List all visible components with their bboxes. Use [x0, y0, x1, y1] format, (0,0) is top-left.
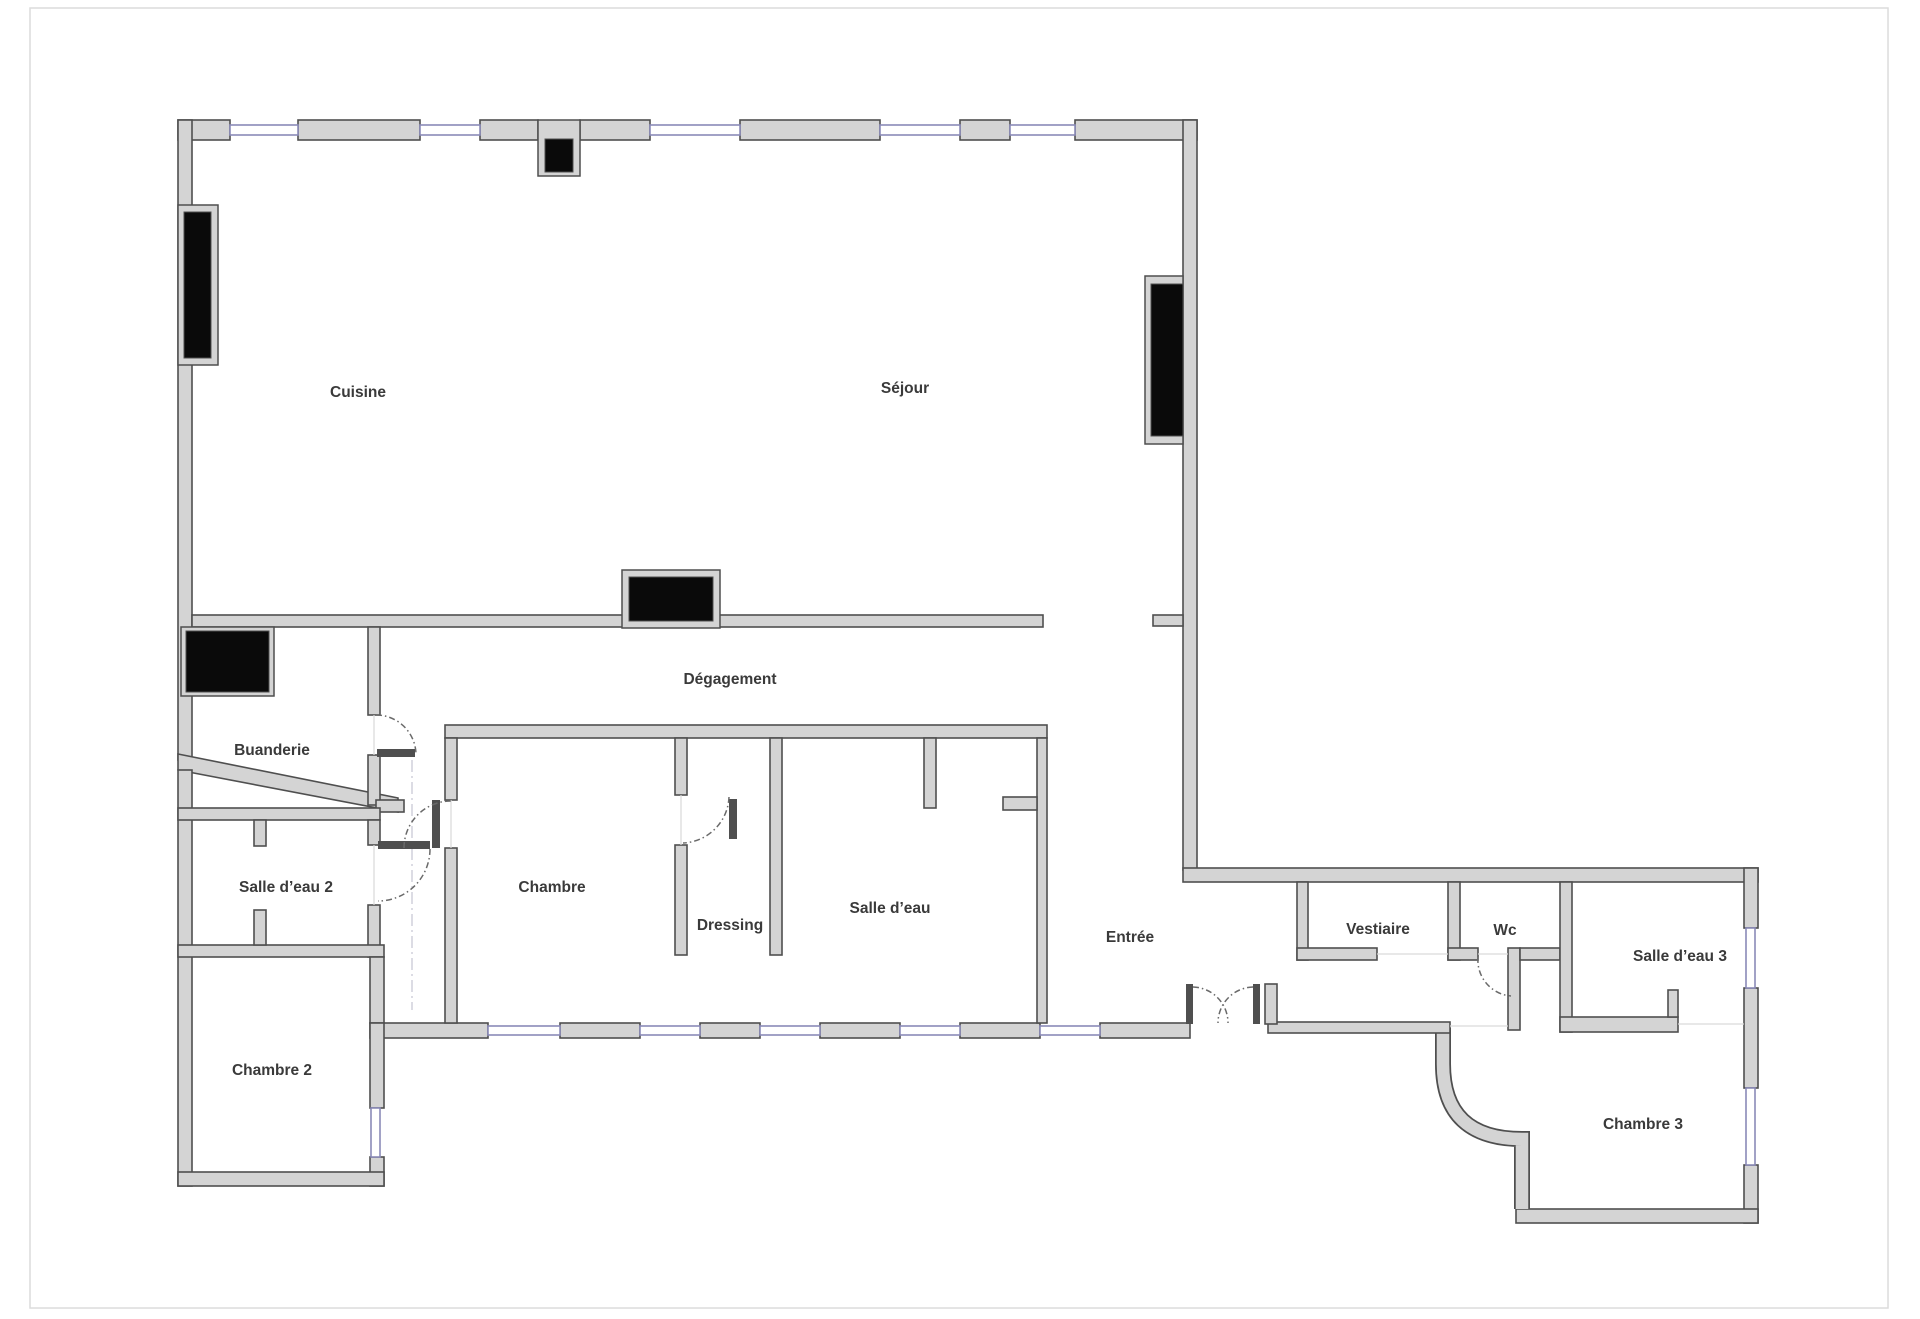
wall-segment [370, 957, 384, 1023]
window [900, 1026, 960, 1035]
wall-stub [1003, 797, 1037, 810]
room-label-chambre-2: Chambre 2 [232, 1062, 312, 1079]
wall-segment [1075, 120, 1197, 140]
window [760, 1026, 820, 1035]
door-arc [404, 801, 451, 848]
door-arc [378, 849, 430, 901]
wall-segment [960, 120, 1010, 140]
curved-wall [1443, 1028, 1522, 1209]
room-label-buanderie: Buanderie [234, 742, 310, 759]
wall-segment [192, 615, 1043, 627]
window [371, 1108, 380, 1157]
black-fixture [186, 631, 269, 692]
room-label-degagement: Dégagement [683, 671, 776, 688]
door-arc [1478, 957, 1511, 996]
wall-segment [178, 808, 380, 820]
door-leaf [729, 799, 737, 839]
wall-segment [368, 627, 380, 715]
wall-segment [1268, 1022, 1450, 1033]
black-fixture [629, 577, 713, 621]
wall-segment [178, 945, 384, 957]
wall-segment [1037, 738, 1047, 1023]
room-label-salle-deau-2: Salle d’eau 2 [239, 879, 333, 896]
black-fixture [184, 212, 211, 358]
axis-lines [178, 130, 1750, 1209]
wall-stub [254, 820, 266, 846]
room-label-entree: Entrée [1106, 929, 1155, 946]
wall-segment [298, 120, 420, 140]
room-label-chambre-3: Chambre 3 [1603, 1116, 1683, 1133]
wall-segment [1297, 948, 1377, 960]
door-leaf [377, 749, 415, 757]
wall-segment [178, 770, 192, 1186]
window [1746, 928, 1755, 988]
wall-segment [675, 738, 687, 795]
window [880, 125, 960, 135]
wall-segment [178, 1172, 384, 1186]
wall-segment [740, 120, 880, 140]
wall-segment [1744, 868, 1758, 928]
wall-segment [1516, 1209, 1758, 1223]
wall-stub [254, 910, 266, 945]
room-label-chambre: Chambre [518, 879, 586, 896]
wall-segment [580, 120, 650, 140]
black-fixture [1151, 284, 1183, 436]
black-fixture [545, 139, 573, 172]
fixtures-group [178, 120, 1183, 696]
wall-stub [924, 738, 936, 808]
wall-stub [1265, 984, 1277, 1024]
windows-group [230, 125, 1755, 1165]
window [1010, 125, 1075, 135]
wall-segment [445, 738, 457, 800]
window [640, 1026, 700, 1035]
diagonal-wall [178, 754, 398, 812]
door-leaf [432, 800, 440, 848]
wall-segment [1744, 988, 1758, 1088]
room-label-wc: Wc [1493, 922, 1517, 939]
wall-segment [445, 725, 1047, 738]
window [488, 1026, 560, 1035]
page-border [30, 8, 1888, 1308]
wall-segment [368, 755, 380, 805]
room-label-salle-deau-3: Salle d’eau 3 [1633, 948, 1727, 965]
wall-segment [560, 1023, 640, 1038]
room-label-salle-deau: Salle d’eau [850, 900, 931, 917]
wall-segment [370, 1023, 488, 1038]
door-leaf [1186, 984, 1193, 1024]
wall-segment [1560, 882, 1572, 1032]
wall-segment [960, 1023, 1040, 1038]
window [420, 125, 480, 135]
wall-segment [675, 845, 687, 955]
window [650, 125, 740, 135]
wall-stub [1153, 615, 1183, 626]
door-arc [1218, 987, 1253, 1023]
wall-segment [370, 1023, 384, 1108]
wall-segment [1560, 1017, 1678, 1032]
wall-segment [1508, 948, 1520, 1030]
window [1040, 1026, 1100, 1035]
room-label-sejour: Séjour [881, 380, 929, 397]
wall-segment [700, 1023, 760, 1038]
floor-plan-canvas: Cuisine Séjour Dégagement Buanderie Sall… [0, 0, 1920, 1319]
wall-segment [1100, 1023, 1190, 1038]
door-leaf [1253, 984, 1260, 1024]
wall-segment [1183, 868, 1758, 882]
room-label-dressing: Dressing [697, 917, 763, 934]
wall-segment [1520, 948, 1560, 960]
door-arc [683, 797, 729, 843]
wall-segment [770, 738, 782, 955]
wall-stub [1668, 990, 1678, 1017]
wall-segment [820, 1023, 900, 1038]
window [230, 125, 298, 135]
wall-segment [445, 848, 457, 1023]
room-label-cuisine: Cuisine [330, 384, 386, 401]
wall-stub [1448, 948, 1478, 960]
room-label-vestiaire: Vestiaire [1346, 921, 1410, 938]
floor-plan-page: Cuisine Séjour Dégagement Buanderie Sall… [0, 0, 1920, 1319]
walls-group [178, 120, 1758, 1223]
window [1746, 1088, 1755, 1165]
wall-segment [1183, 120, 1197, 870]
wall-segment [480, 120, 538, 140]
